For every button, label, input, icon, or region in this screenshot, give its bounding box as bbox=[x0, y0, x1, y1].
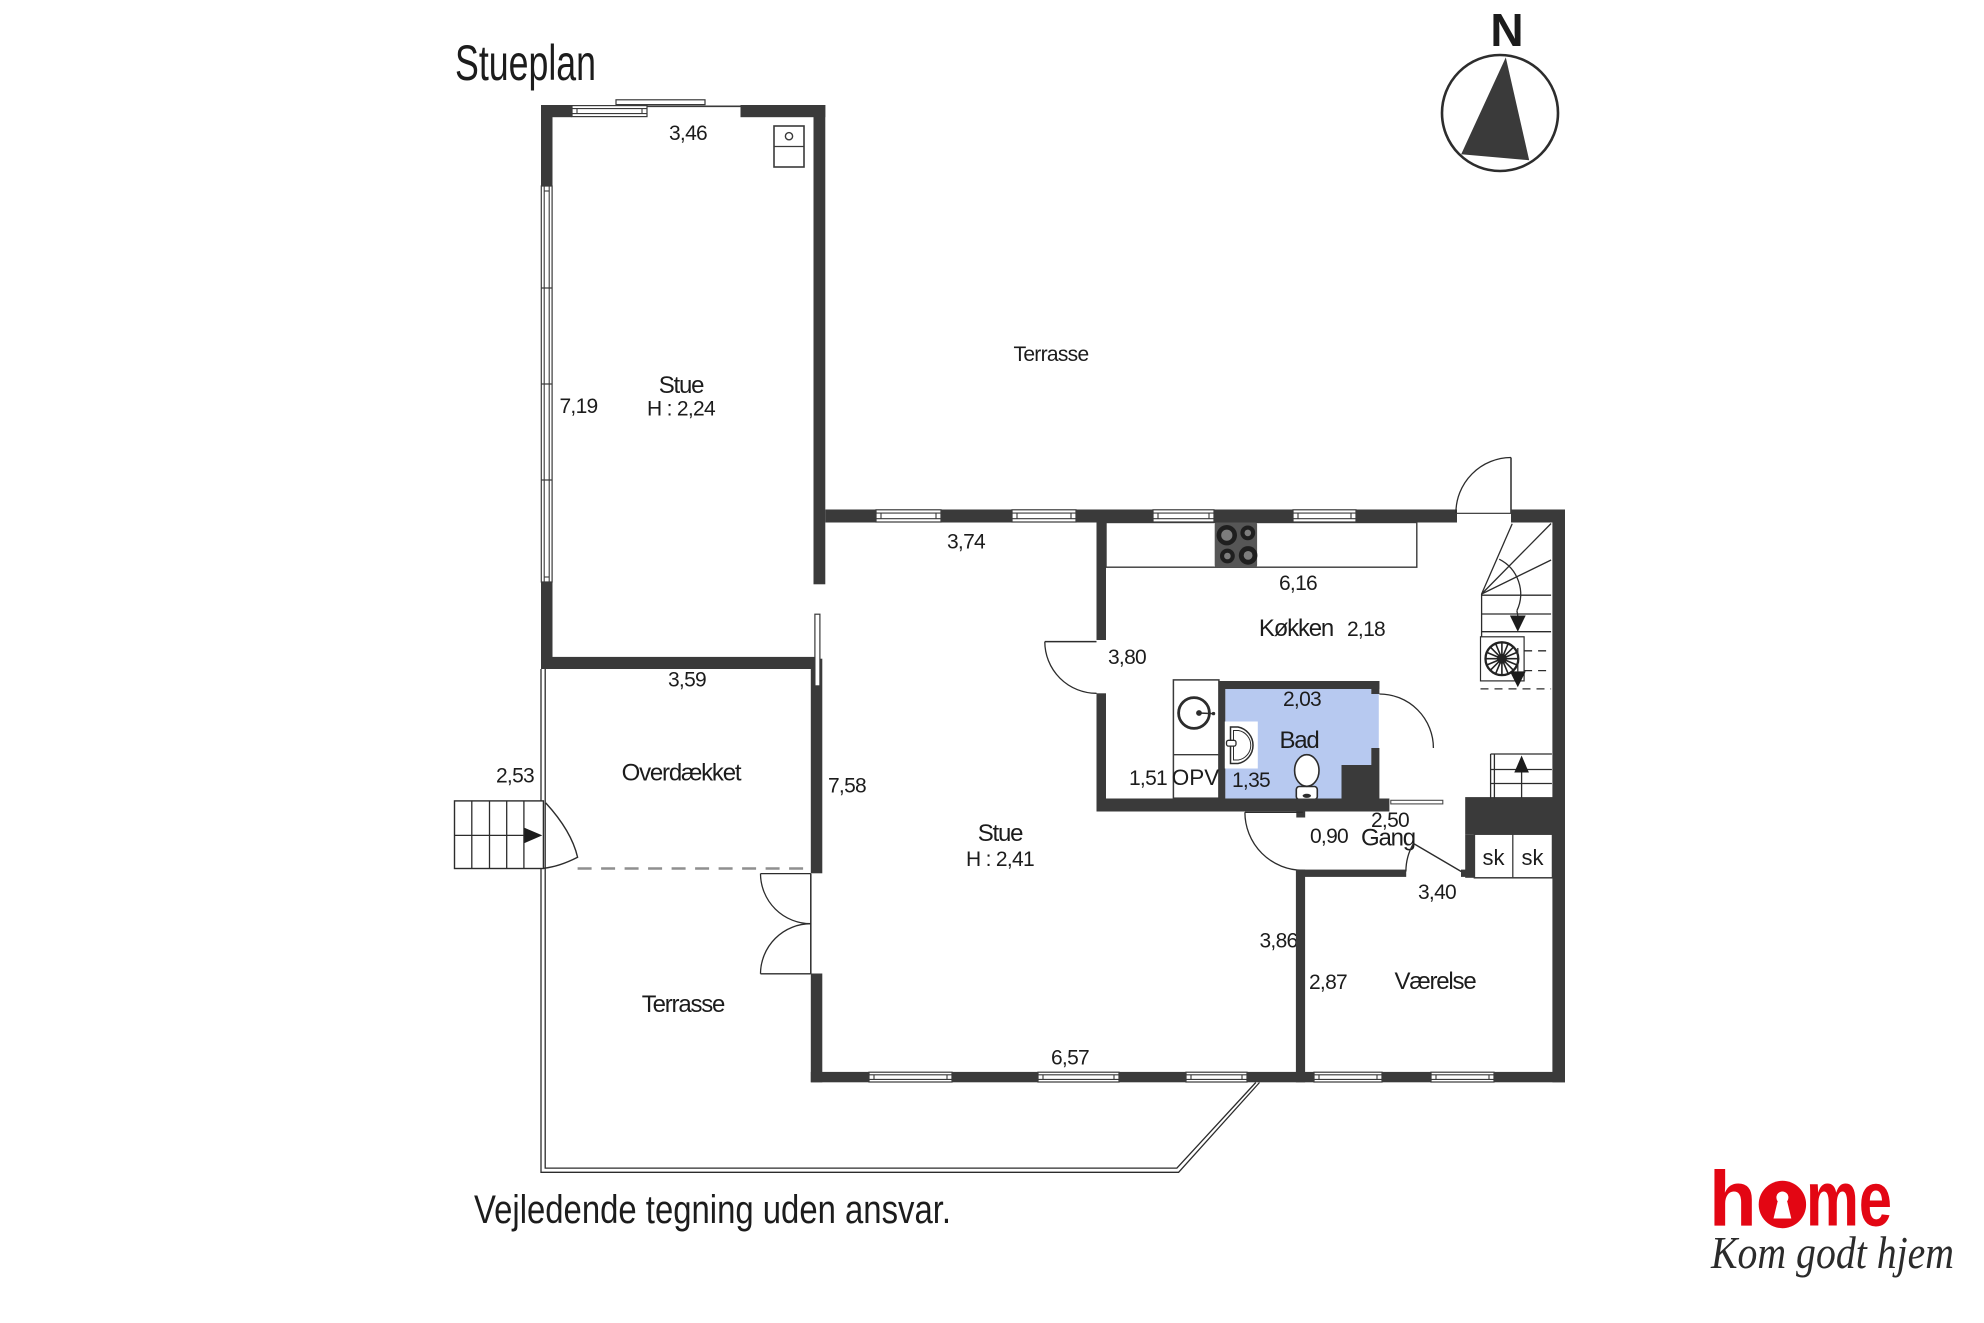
svg-text:Stueplan: Stueplan bbox=[455, 35, 596, 91]
svg-text:Kom godt hjem: Kom godt hjem bbox=[1710, 1227, 1954, 1278]
svg-text:3,46: 3,46 bbox=[669, 122, 707, 145]
svg-text:6,57: 6,57 bbox=[1051, 1047, 1089, 1070]
svg-text:OPV: OPV bbox=[1172, 765, 1220, 790]
svg-text:2,50: 2,50 bbox=[1371, 809, 1409, 832]
svg-text:3,86: 3,86 bbox=[1259, 930, 1297, 953]
svg-text:Værelse: Værelse bbox=[1395, 968, 1477, 995]
svg-text:sk: sk bbox=[1522, 845, 1545, 870]
svg-text:2,03: 2,03 bbox=[1283, 688, 1321, 711]
svg-text:7,19: 7,19 bbox=[559, 395, 597, 418]
svg-text:N: N bbox=[1490, 4, 1523, 56]
svg-text:2,18: 2,18 bbox=[1347, 618, 1385, 641]
svg-text:2,87: 2,87 bbox=[1309, 971, 1347, 994]
svg-text:Terrasse: Terrasse bbox=[642, 991, 725, 1018]
svg-text:1,51: 1,51 bbox=[1129, 767, 1167, 790]
svg-text:2,53: 2,53 bbox=[496, 765, 534, 788]
svg-text:1,35: 1,35 bbox=[1232, 769, 1270, 792]
svg-text:Bad: Bad bbox=[1279, 727, 1318, 754]
svg-text:Overdækket: Overdækket bbox=[622, 760, 742, 787]
svg-text:3,59: 3,59 bbox=[668, 668, 706, 691]
svg-text:Stue: Stue bbox=[659, 372, 704, 399]
svg-text:H : 2,41: H : 2,41 bbox=[966, 848, 1034, 871]
svg-text:H : 2,24: H : 2,24 bbox=[647, 398, 716, 421]
svg-text:3,80: 3,80 bbox=[1108, 646, 1146, 669]
svg-text:3,40: 3,40 bbox=[1418, 881, 1456, 904]
svg-text:0,90: 0,90 bbox=[1310, 825, 1348, 848]
svg-text:3,74: 3,74 bbox=[947, 531, 986, 554]
svg-text:Køkken: Køkken bbox=[1259, 615, 1333, 642]
svg-text:6,16: 6,16 bbox=[1279, 572, 1317, 595]
svg-text:Vejledende tegning uden ansvar: Vejledende tegning uden ansvar. bbox=[474, 1188, 951, 1232]
svg-text:sk: sk bbox=[1483, 845, 1506, 870]
svg-text:Stue: Stue bbox=[978, 820, 1023, 847]
svg-text:7,58: 7,58 bbox=[828, 774, 866, 797]
svg-text:Terrasse: Terrasse bbox=[1014, 343, 1089, 366]
